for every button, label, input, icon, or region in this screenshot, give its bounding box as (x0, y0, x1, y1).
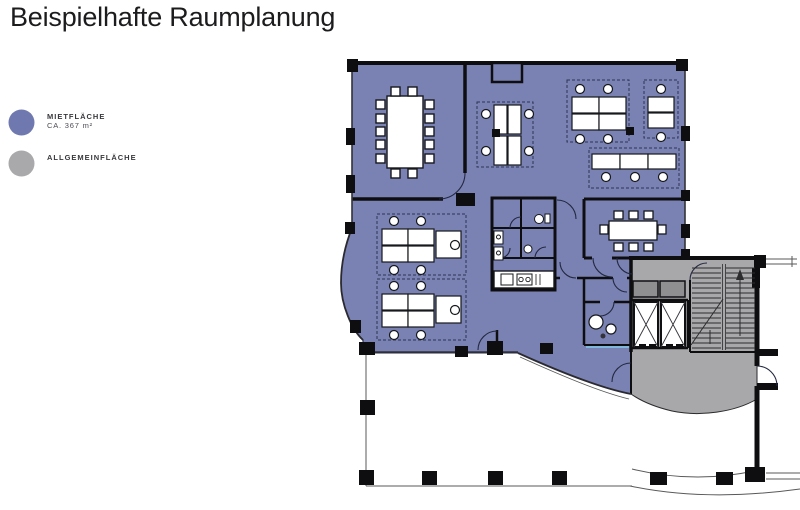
floor-plan-svg (0, 0, 800, 505)
top-wall-niche (492, 63, 522, 82)
floor-plan (0, 0, 800, 505)
kitchen-counter (494, 271, 554, 288)
